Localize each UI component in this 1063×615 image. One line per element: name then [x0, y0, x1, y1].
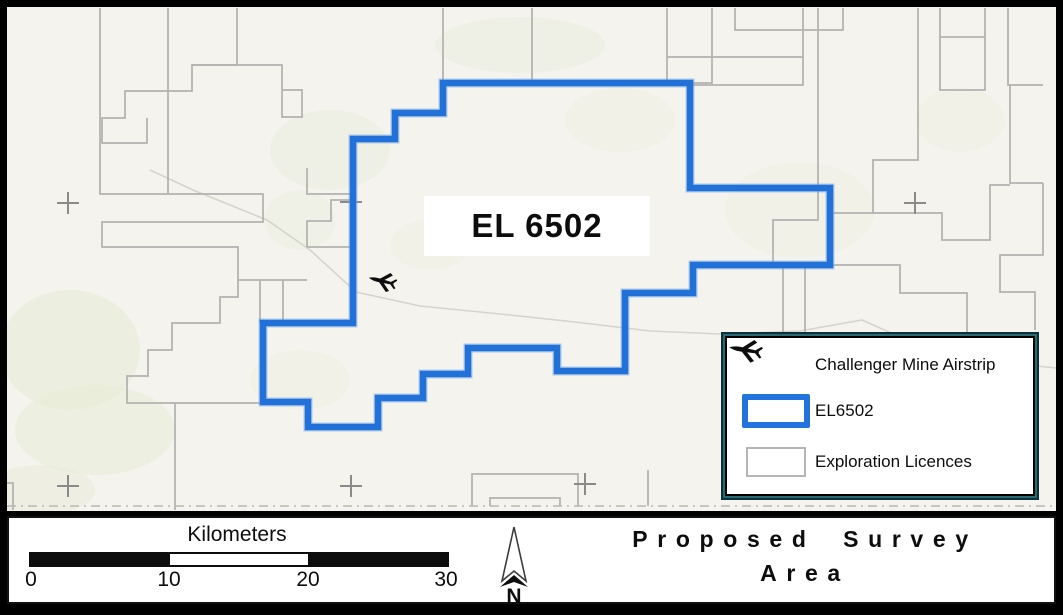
- scalebar-segment-2: [170, 554, 309, 565]
- licence-boundary: [1008, 8, 1043, 85]
- el6502-swatch-icon: [737, 394, 815, 428]
- licence-boundary: [102, 8, 237, 143]
- scalebar-tick-20: 20: [296, 568, 319, 592]
- licence-boundary: [472, 474, 578, 506]
- legend-label-el6502: EL6502: [815, 401, 874, 421]
- map-canvas: EL 6502 Challenger Mine Airstrip EL6502: [7, 7, 1056, 514]
- map-legend-inner: Challenger Mine Airstrip EL6502 Explorat…: [725, 336, 1035, 496]
- licence-boundary: [873, 185, 1010, 240]
- licence-boundary: [1010, 85, 1043, 183]
- scalebar-tick-0: 0: [25, 568, 37, 592]
- licence-boundary: [940, 8, 985, 90]
- licence-boundary: [830, 265, 967, 340]
- screenshot-root: { "map": { "el_label": "EL 6502", "color…: [0, 0, 1063, 615]
- map-title-line2: Area: [565, 556, 1045, 590]
- map-title: Proposed Survey Area: [565, 522, 1045, 590]
- map-title-line1: Proposed Survey: [565, 522, 1045, 556]
- scalebar: [29, 552, 449, 567]
- licence-boundary: [490, 498, 560, 506]
- legend-label-airstrip: Challenger Mine Airstrip: [815, 355, 995, 375]
- licence-boundary: [192, 65, 302, 117]
- legend-label-licences: Exploration Licences: [815, 452, 972, 472]
- licence-boundary: [735, 8, 843, 30]
- legend-item-el6502: EL6502: [737, 394, 1023, 428]
- scalebar-tick-30: 30: [434, 568, 457, 592]
- scalebar-title: Kilometers: [187, 523, 286, 547]
- scalebar-tick-10: 10: [157, 568, 180, 592]
- airstrip-marker-layer: [366, 268, 398, 294]
- scalebar-segment-1: [31, 554, 170, 565]
- scalebar-segment-3: [308, 554, 447, 565]
- north-arrow-icon: N: [489, 524, 539, 604]
- el6502-map-label: EL 6502: [471, 207, 602, 245]
- svg-text:N: N: [506, 585, 521, 604]
- el6502-map-label-box: EL 6502: [424, 196, 650, 256]
- licence-swatch-icon: [737, 447, 815, 477]
- licence-boundary: [690, 8, 712, 83]
- map-footer: Kilometers 0 10 20 30 N Proposed Survey …: [7, 516, 1056, 604]
- map-legend: Challenger Mine Airstrip EL6502 Explorat…: [721, 332, 1039, 500]
- legend-item-airstrip: Challenger Mine Airstrip: [737, 355, 1023, 375]
- airstrip-airplane-icon: [366, 268, 398, 294]
- licence-boundary: [1000, 183, 1043, 330]
- legend-item-licences: Exploration Licences: [737, 447, 1023, 477]
